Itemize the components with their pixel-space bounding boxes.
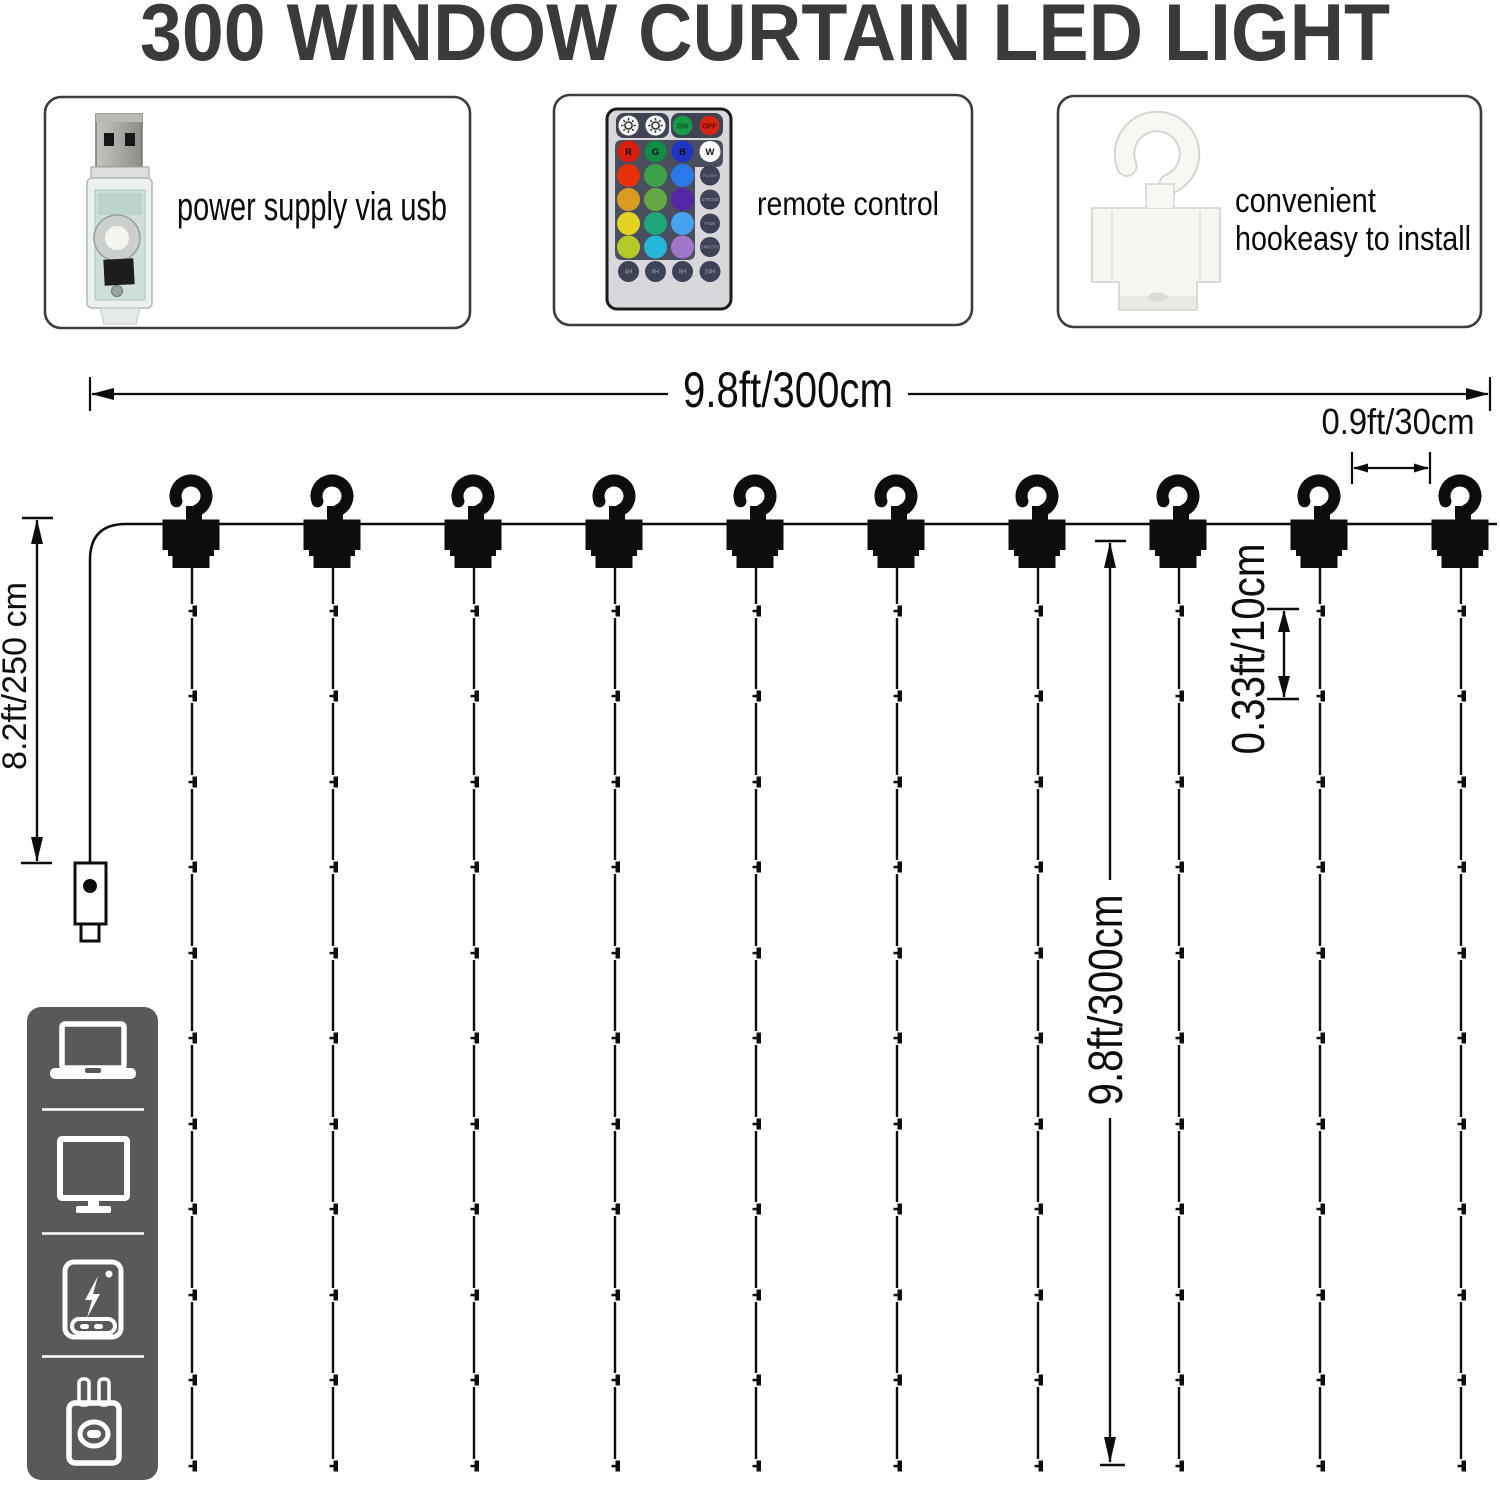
- svg-text:4H: 4H: [625, 270, 633, 276]
- svg-text:8H: 8H: [679, 270, 687, 276]
- svg-text:OFF: OFF: [702, 122, 717, 131]
- svg-text:power supply via usb: power supply via usb: [177, 185, 447, 229]
- svg-text:SMOOTH: SMOOTH: [701, 245, 719, 250]
- svg-text:STROBE: STROBE: [701, 197, 718, 202]
- svg-text:FLASH: FLASH: [703, 173, 717, 178]
- svg-text:0.33ft/10cm: 0.33ft/10cm: [1222, 544, 1274, 755]
- svg-text:0.9ft/30cm: 0.9ft/30cm: [1322, 401, 1475, 442]
- svg-text:300 WINDOW CURTAIN LED LIGHT: 300 WINDOW CURTAIN LED LIGHT: [140, 0, 1390, 78]
- svg-text:8.2ft/250 cm: 8.2ft/250 cm: [0, 582, 34, 770]
- svg-text:convenient: convenient: [1235, 182, 1376, 220]
- svg-text:6H: 6H: [652, 270, 660, 276]
- svg-text:B: B: [679, 147, 686, 158]
- svg-text:ON: ON: [677, 122, 688, 131]
- svg-text:R: R: [625, 147, 632, 158]
- svg-text:remote control: remote control: [757, 185, 939, 222]
- svg-text:FADE: FADE: [705, 221, 716, 226]
- svg-text:W: W: [706, 147, 715, 158]
- svg-text:24H: 24H: [704, 270, 715, 276]
- svg-text:hookeasy to install: hookeasy to install: [1235, 220, 1471, 258]
- svg-text:9.8ft/300cm: 9.8ft/300cm: [1080, 895, 1133, 1106]
- svg-text:G: G: [652, 147, 659, 158]
- svg-text:9.8ft/300cm: 9.8ft/300cm: [683, 362, 893, 418]
